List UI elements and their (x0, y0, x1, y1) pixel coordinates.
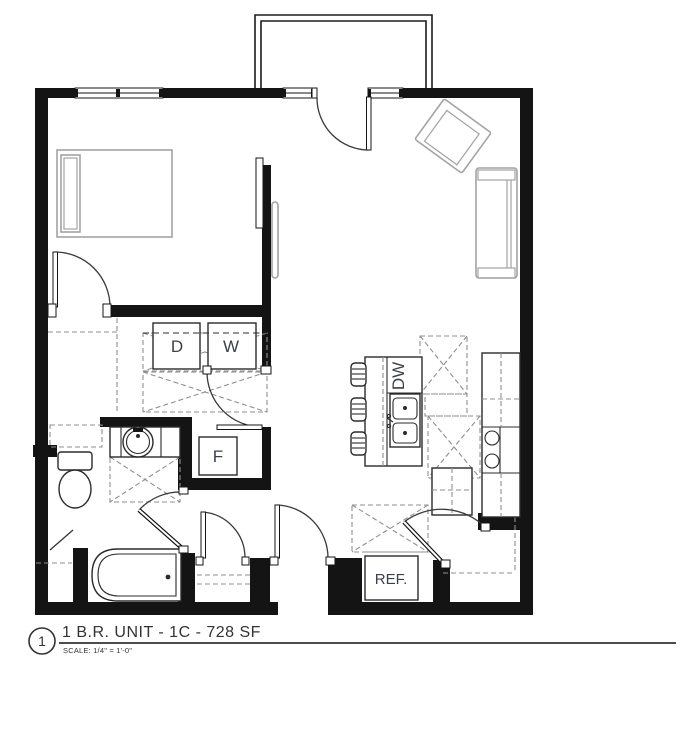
floor-plan-drawing: D W F DW REF. 1 1 B.R. UNIT - 1C - 728 S… (0, 0, 680, 732)
tv-panel (272, 202, 278, 278)
dishwasher-label: DW (389, 362, 408, 390)
linen-closet-door (196, 512, 249, 565)
refrigerator-label: REF. (375, 571, 408, 588)
stool (351, 432, 366, 455)
hall-clearance (143, 372, 267, 412)
bathtub (92, 549, 181, 601)
kitchen-counter-right (482, 353, 520, 517)
bedroom-window (75, 88, 163, 98)
bed (57, 150, 172, 237)
pantry-clearance (352, 505, 428, 552)
sliding-panel (256, 158, 263, 228)
laundry-closet-door (203, 366, 271, 430)
balcony-door (312, 88, 371, 150)
stool (351, 363, 366, 386)
washer-label: W (223, 337, 239, 356)
kitchen-upper-cabinet-top (420, 336, 467, 394)
floor-plan-sheet: D W F DW REF. 1 1 B.R. UNIT - 1C - 728 S… (0, 0, 680, 732)
plan-scale: SCALE: 1/4" = 1'-0" (63, 646, 132, 655)
detail-number: 1 (38, 633, 46, 649)
title-block: 1 1 B.R. UNIT - 1C - 728 SF SCALE: 1/4" … (29, 624, 676, 655)
bathroom-door (139, 487, 188, 553)
diagonal-mark (50, 530, 73, 550)
living-window-left (283, 88, 316, 98)
kitchen-cabinet-connector (425, 394, 467, 416)
balcony-rail (255, 15, 432, 88)
island-sink (387, 394, 420, 447)
furnace-label: F (213, 447, 223, 466)
plan-title: 1 B.R. UNIT - 1C - 728 SF (62, 624, 261, 641)
sofa (476, 168, 517, 278)
hall-nook-clearance (50, 425, 102, 447)
hall-closet-door (270, 505, 335, 565)
stool (351, 398, 366, 421)
dryer-label: D (171, 337, 183, 356)
bath-clearance (110, 457, 180, 502)
bar-stools (351, 363, 366, 455)
living-window-right (368, 88, 403, 98)
toilet (58, 452, 92, 508)
armchair (415, 99, 491, 174)
bedroom-door (48, 252, 111, 317)
vanity-sink (110, 427, 180, 457)
kitchen-cabinet-lower (432, 468, 472, 515)
